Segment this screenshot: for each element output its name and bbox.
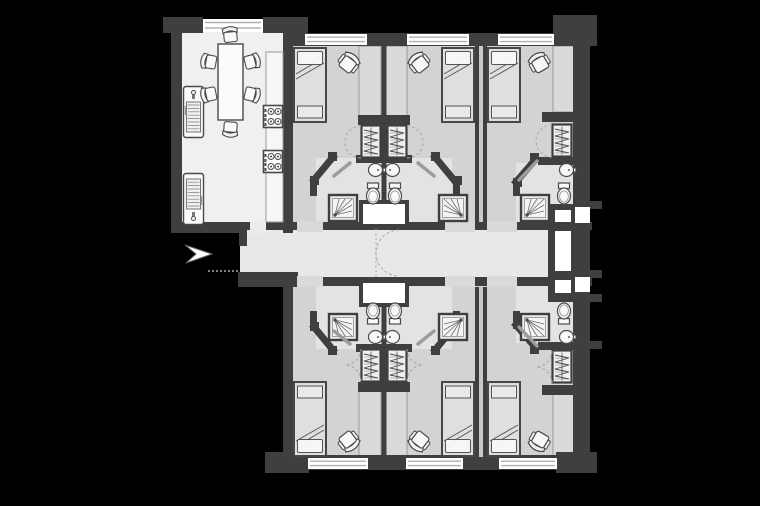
- door-opening-bottom-3: [487, 276, 517, 287]
- window-top-1: [305, 34, 367, 45]
- wall: [513, 182, 520, 196]
- kitchen-door-opening: [250, 221, 266, 234]
- toilet: [389, 183, 402, 204]
- wall-partition: [382, 281, 387, 457]
- wall-stub: [588, 270, 602, 278]
- door-opening-top-2: [445, 221, 475, 232]
- wardrobe: [388, 126, 407, 158]
- wall: [556, 452, 597, 473]
- wall: [328, 152, 337, 161]
- wall: [283, 33, 293, 233]
- desk-bottom-2: [385, 387, 407, 457]
- wall-stub: [588, 294, 602, 302]
- shower: [329, 314, 357, 340]
- wall: [163, 17, 203, 33]
- door-opening-bottom-2: [445, 276, 475, 287]
- toilet: [558, 303, 571, 324]
- dining-chair: [222, 121, 238, 137]
- wardrobe: [362, 126, 381, 158]
- shower: [439, 314, 467, 340]
- wall: [310, 311, 317, 327]
- wall: [431, 346, 440, 355]
- service-shaft: [361, 281, 407, 305]
- bed: [294, 382, 326, 456]
- kitchen-worktop: [266, 52, 283, 222]
- toilet: [389, 303, 402, 324]
- wall-partition: [483, 287, 487, 457]
- wall-cavity: [479, 287, 483, 457]
- wall-stub: [588, 201, 602, 209]
- toilet: [367, 183, 380, 204]
- window-bottom-1: [308, 458, 368, 469]
- wall: [573, 33, 590, 470]
- shower: [329, 195, 357, 221]
- wall: [263, 17, 308, 33]
- shower: [439, 195, 467, 221]
- door-opening-bottom-1: [297, 276, 323, 287]
- wall: [283, 277, 293, 458]
- door-opening-top-1: [297, 221, 323, 232]
- wall-partition: [483, 46, 487, 222]
- wall: [328, 346, 337, 355]
- desk-bottom-1: [359, 387, 381, 457]
- wall: [538, 342, 577, 350]
- wall: [358, 382, 410, 392]
- wall: [513, 311, 520, 325]
- bed: [442, 48, 474, 122]
- window-bottom-3: [499, 458, 557, 469]
- bed: [488, 382, 520, 456]
- window-top-3: [498, 34, 554, 45]
- wall: [431, 152, 440, 161]
- wall: [171, 33, 182, 227]
- shower: [521, 314, 549, 340]
- right-wall-window: [573, 207, 590, 223]
- wall: [171, 222, 247, 233]
- wall: [542, 112, 577, 122]
- bed: [488, 48, 520, 122]
- service-shaft: [361, 202, 407, 226]
- wardrobe: [388, 350, 407, 382]
- bed: [294, 48, 326, 122]
- corridor-floor: [240, 226, 550, 280]
- hob: [264, 106, 283, 128]
- desk-top-3: [553, 46, 574, 112]
- wall: [358, 115, 410, 125]
- dining-chair: [222, 26, 239, 43]
- wall: [542, 385, 577, 395]
- service-shaft: [553, 208, 573, 224]
- wall-stub: [588, 341, 602, 349]
- wall-partition: [382, 46, 387, 226]
- desk-top-2: [385, 46, 407, 116]
- wall: [239, 233, 247, 246]
- wall-partition: [475, 287, 479, 457]
- wardrobe: [362, 350, 381, 382]
- dining-table: [218, 44, 243, 120]
- wall: [310, 180, 317, 196]
- hob: [264, 151, 283, 173]
- desk-top-1: [359, 46, 381, 116]
- right-wall-window: [573, 277, 590, 292]
- toilet: [558, 183, 571, 204]
- window-top-2: [407, 34, 469, 45]
- window-bottom-2: [406, 458, 463, 469]
- floor-plan-drawing: [0, 0, 760, 506]
- wall-partition: [475, 46, 479, 222]
- service-shaft: [553, 229, 573, 273]
- wall-cavity: [479, 46, 483, 222]
- shower: [521, 195, 549, 221]
- wall: [453, 180, 460, 196]
- kitchen-sink: [184, 174, 204, 225]
- service-shaft: [553, 278, 573, 295]
- bed: [442, 382, 474, 456]
- desk-bottom-3: [553, 394, 574, 456]
- door-opening-top-3: [487, 221, 517, 232]
- toilet: [367, 303, 380, 324]
- wardrobe: [553, 351, 572, 383]
- floor-plan-canvas: [0, 0, 760, 506]
- wardrobe: [553, 125, 572, 157]
- wall: [538, 157, 577, 165]
